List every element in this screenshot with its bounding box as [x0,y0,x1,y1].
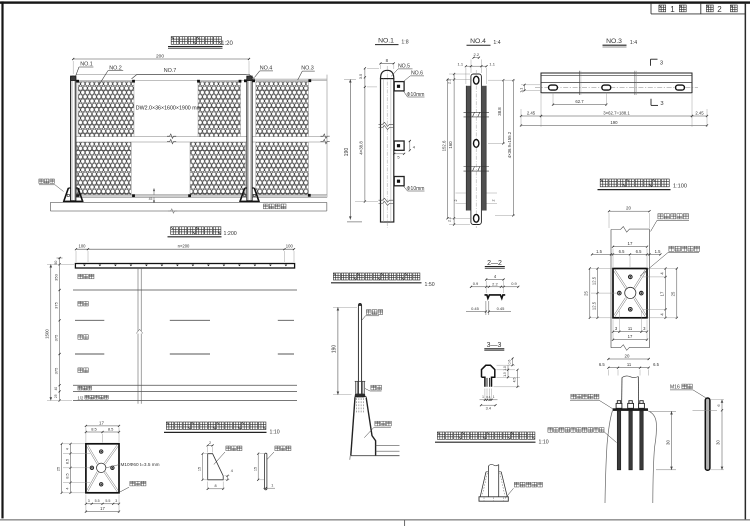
svg-text:3: 3 [88,499,90,503]
svg-text:3: 3 [615,326,618,331]
svg-text:152.6: 152.6 [442,140,447,151]
svg-text:1: 1 [670,5,675,14]
svg-text:30: 30 [665,440,670,445]
svg-text:NO.4: NO.4 [470,38,486,45]
svg-text:1:10: 1:10 [539,440,549,446]
svg-text:0.45: 0.45 [497,306,506,311]
svg-text:NO.7: NO.7 [164,68,177,74]
svg-text:1.1: 1.1 [458,61,464,66]
svg-text:1:8: 1:8 [401,40,408,46]
svg-text:190: 190 [332,345,338,354]
svg-text:2.2: 2.2 [474,52,480,57]
svg-text:12.5: 12.5 [591,276,596,285]
svg-text:4×38.8: 4×38.8 [359,141,364,155]
svg-text:4: 4 [413,144,416,149]
svg-text:190: 190 [610,120,618,125]
svg-text:3: 3 [660,101,663,107]
svg-text:NO.1: NO.1 [378,38,394,45]
svg-text:3: 3 [115,499,117,503]
svg-text:8.5: 8.5 [91,426,97,431]
svg-text:160: 160 [448,141,453,149]
svg-text:350: 350 [53,273,58,280]
svg-text:375: 375 [53,334,58,341]
svg-text:1.0: 1.0 [503,366,507,371]
svg-text:25: 25 [54,394,58,398]
svg-text:3×62.7=188.1: 3×62.7=188.1 [603,110,630,115]
svg-text:25: 25 [584,291,589,296]
svg-text:2.2: 2.2 [448,79,452,84]
svg-text:1.5: 1.5 [655,249,661,254]
svg-text:17: 17 [659,291,664,296]
svg-text:2: 2 [717,5,722,14]
svg-text:25: 25 [671,291,676,296]
svg-text:2: 2 [492,200,496,202]
svg-text:8.5: 8.5 [108,426,114,431]
svg-text:1:100: 1:100 [673,183,687,189]
svg-text:1.5: 1.5 [596,249,602,254]
svg-text:1:50: 1:50 [425,282,435,288]
svg-text:1: 1 [482,395,484,399]
svg-text:2.2: 2.2 [492,281,498,286]
svg-text:6.5: 6.5 [599,362,605,367]
svg-text:3.4: 3.4 [486,406,491,410]
svg-text:6: 6 [716,404,721,407]
svg-text:375: 375 [53,301,58,308]
svg-text:DW2.0×36×1600×1900 mm: DW2.0×36×1600×1900 mm [136,105,202,111]
svg-text:20: 20 [625,353,630,358]
svg-text:40: 40 [54,387,58,391]
svg-text:4.5: 4.5 [512,378,516,383]
svg-text:8: 8 [386,58,389,63]
svg-text:4: 4 [659,272,664,275]
svg-text:1:10: 1:10 [270,430,280,436]
svg-text:375: 375 [53,367,58,374]
svg-text:3.5: 3.5 [358,73,363,79]
svg-text:1: 1 [271,484,273,488]
svg-text:0.9: 0.9 [473,281,479,286]
svg-text:5: 5 [397,154,400,159]
svg-text:2: 2 [209,441,211,445]
svg-text:3: 3 [660,61,663,67]
svg-text:M10Φ60 t=3.5 mm: M10Φ60 t=3.5 mm [121,462,160,467]
svg-text:2.45: 2.45 [695,110,704,115]
svg-text:0.6: 0.6 [507,360,511,365]
svg-text:NO.3: NO.3 [301,66,314,72]
svg-text:8.5: 8.5 [65,459,69,464]
svg-text:1:200: 1:200 [224,231,237,237]
svg-text:12.5: 12.5 [591,301,596,310]
svg-text:1.1: 1.1 [489,61,495,66]
svg-text:17: 17 [628,241,633,246]
svg-text:0.45: 0.45 [471,306,480,311]
svg-text:2: 2 [454,200,458,202]
svg-text:8.5: 8.5 [65,473,69,478]
svg-text:2.2: 2.2 [448,217,452,222]
svg-text:4: 4 [65,487,69,489]
svg-text:25: 25 [56,466,61,471]
svg-text:n×200: n×200 [178,244,190,249]
svg-text:1:20: 1:20 [221,41,233,47]
svg-text:17: 17 [100,506,105,511]
svg-text:1.5: 1.5 [503,372,507,377]
svg-text:4×36.9=155.2: 4×36.9=155.2 [507,131,512,158]
svg-text:200: 200 [156,53,164,59]
svg-text:1:4: 1:4 [493,40,500,46]
svg-text:6.5: 6.5 [619,249,625,254]
svg-text:20: 20 [626,206,631,211]
svg-text:1: 1 [493,395,495,399]
svg-text:190: 190 [344,148,350,157]
svg-text:45: 45 [149,197,153,201]
svg-text:NO.3: NO.3 [606,38,622,45]
svg-text:6.5: 6.5 [636,249,642,254]
svg-text:4: 4 [65,448,69,450]
svg-text:3—3: 3—3 [487,342,502,349]
svg-text:2—2: 2—2 [487,260,502,267]
svg-text:1500: 1500 [45,329,50,339]
svg-text:5.5: 5.5 [105,499,110,503]
svg-text:100: 100 [286,243,294,248]
svg-text:6.5: 6.5 [653,362,659,367]
svg-text:4: 4 [494,274,497,279]
svg-text:100: 100 [79,243,87,248]
svg-text:NO.4: NO.4 [260,66,273,72]
svg-text:11: 11 [628,326,633,331]
svg-text:62.7: 62.7 [575,99,584,104]
svg-text:NO.1: NO.1 [80,62,93,68]
svg-text:3: 3 [643,326,646,331]
svg-text:15: 15 [253,467,257,471]
svg-text:1:4: 1:4 [630,40,637,46]
svg-text:17: 17 [628,334,633,339]
svg-text:15: 15 [198,467,202,471]
svg-text:1/2: 1/2 [78,395,84,400]
svg-text:0.9: 0.9 [511,281,517,286]
svg-text:1.1: 1.1 [519,88,523,93]
svg-text:38.8: 38.8 [497,107,502,116]
svg-text:0.4: 0.4 [486,395,491,399]
svg-text:11: 11 [627,362,632,367]
svg-text:4: 4 [231,469,233,473]
svg-text:8: 8 [214,484,216,488]
svg-text:17: 17 [99,420,104,425]
svg-text:30: 30 [716,440,721,445]
svg-text:2.45: 2.45 [527,110,536,115]
svg-text:4: 4 [659,313,664,316]
svg-text:5.5: 5.5 [95,499,100,503]
